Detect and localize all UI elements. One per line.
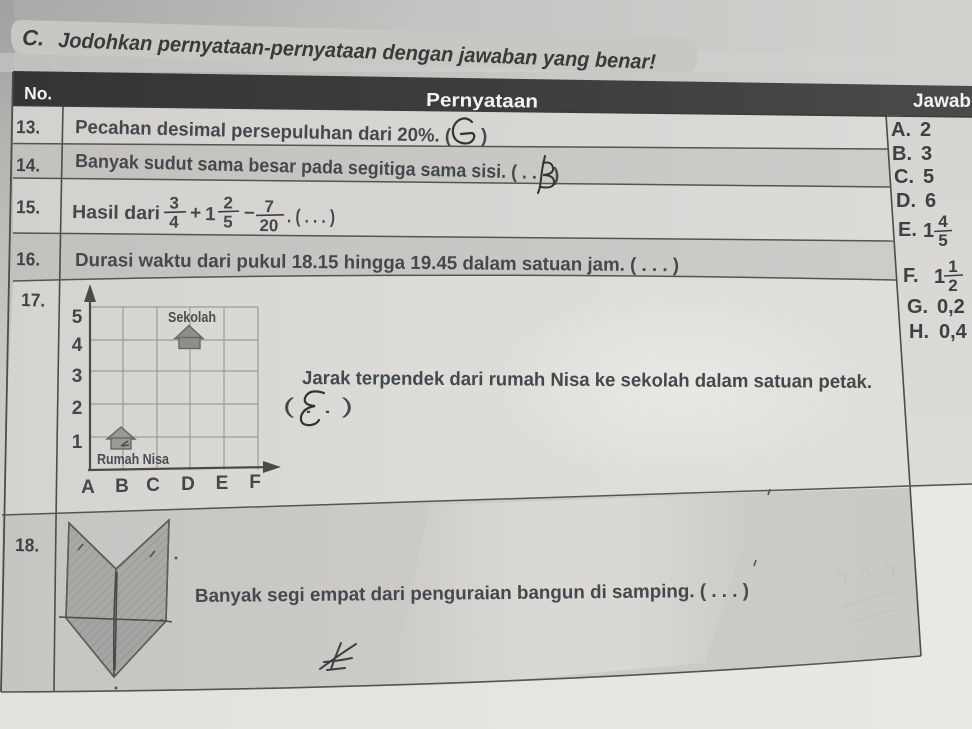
- svg-text:17.: 17.: [21, 289, 46, 311]
- svg-text:3: 3: [169, 194, 179, 213]
- svg-text:F.: F.: [903, 265, 919, 287]
- svg-text:5: 5: [938, 231, 947, 250]
- svg-text:1: 1: [205, 204, 216, 225]
- svg-text:E: E: [216, 473, 229, 494]
- svg-text:0,4: 0,4: [939, 321, 968, 343]
- svg-text:Sekolah: Sekolah: [168, 309, 216, 326]
- svg-text:Rumah Nisa: Rumah Nisa: [97, 451, 170, 468]
- svg-text:18.: 18.: [15, 534, 40, 556]
- svg-text:6: 6: [925, 190, 936, 212]
- svg-text:20: 20: [259, 216, 278, 235]
- svg-text:1: 1: [948, 257, 957, 276]
- svg-text:Jawab: Jawab: [913, 91, 971, 112]
- svg-text:1: 1: [72, 432, 83, 453]
- svg-text:5: 5: [223, 212, 233, 231]
- svg-text:5: 5: [72, 307, 83, 328]
- svg-text:15.: 15.: [16, 196, 41, 218]
- svg-text:): ): [481, 126, 487, 147]
- svg-text:+: +: [190, 203, 201, 224]
- svg-text:B.: B.: [892, 143, 912, 165]
- svg-text:E.: E.: [898, 219, 917, 241]
- svg-text:0,2: 0,2: [937, 296, 965, 318]
- svg-text:1: 1: [934, 266, 945, 288]
- svg-text:C: C: [146, 475, 160, 496]
- svg-text:5: 5: [923, 166, 934, 188]
- svg-text:H.: H.: [909, 321, 929, 343]
- svg-text:14.: 14.: [16, 154, 41, 176]
- svg-text:2: 2: [920, 119, 931, 141]
- svg-text:Hasil dari: Hasil dari: [72, 202, 160, 224]
- svg-text:3: 3: [72, 366, 83, 387]
- svg-text:4: 4: [938, 212, 948, 231]
- svg-text:Jarak terpendek dari rumah Nis: Jarak terpendek dari rumah Nisa ke sekol…: [302, 368, 872, 393]
- svg-text:. ( . . . ): . ( . . . ): [287, 206, 335, 228]
- svg-text:C.: C.: [22, 25, 45, 50]
- svg-text:4: 4: [169, 213, 179, 232]
- svg-text:( . . ): ( . . ): [283, 395, 353, 418]
- svg-text:16.: 16.: [16, 248, 41, 270]
- svg-text:A.: A.: [891, 119, 911, 141]
- svg-text:4: 4: [72, 335, 83, 356]
- svg-text:2: 2: [948, 276, 957, 295]
- svg-text:Pernyataan: Pernyataan: [426, 90, 538, 113]
- svg-text:2: 2: [72, 398, 83, 419]
- svg-text:D: D: [181, 474, 195, 495]
- svg-text:–: –: [244, 202, 255, 223]
- svg-text:1: 1: [923, 220, 934, 242]
- svg-text:13.: 13.: [16, 116, 41, 138]
- svg-text:A: A: [81, 477, 95, 498]
- svg-text:G.: G.: [907, 296, 928, 318]
- svg-text:C.: C.: [894, 166, 914, 188]
- svg-text:2: 2: [223, 193, 233, 212]
- svg-text:7: 7: [264, 197, 274, 216]
- svg-text:3: 3: [921, 143, 932, 165]
- svg-text:D.: D.: [896, 190, 916, 212]
- svg-text:F: F: [249, 472, 261, 493]
- svg-text:B: B: [115, 476, 129, 497]
- svg-text:No.: No.: [24, 83, 53, 103]
